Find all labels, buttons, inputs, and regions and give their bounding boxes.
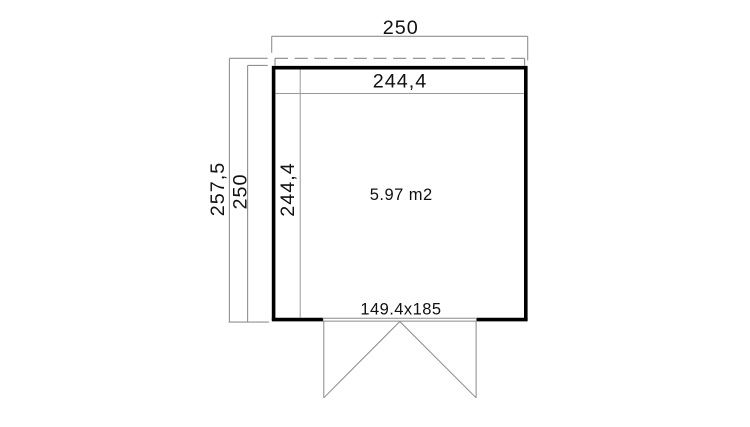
- svg-text:244,4: 244,4: [277, 162, 299, 217]
- svg-text:250: 250: [229, 173, 251, 209]
- svg-text:5.97 m2: 5.97 m2: [370, 186, 433, 204]
- svg-text:149.4x185: 149.4x185: [360, 300, 441, 318]
- svg-text:250: 250: [383, 17, 419, 39]
- svg-text:244,4: 244,4: [373, 71, 428, 93]
- svg-text:257,5: 257,5: [207, 162, 229, 217]
